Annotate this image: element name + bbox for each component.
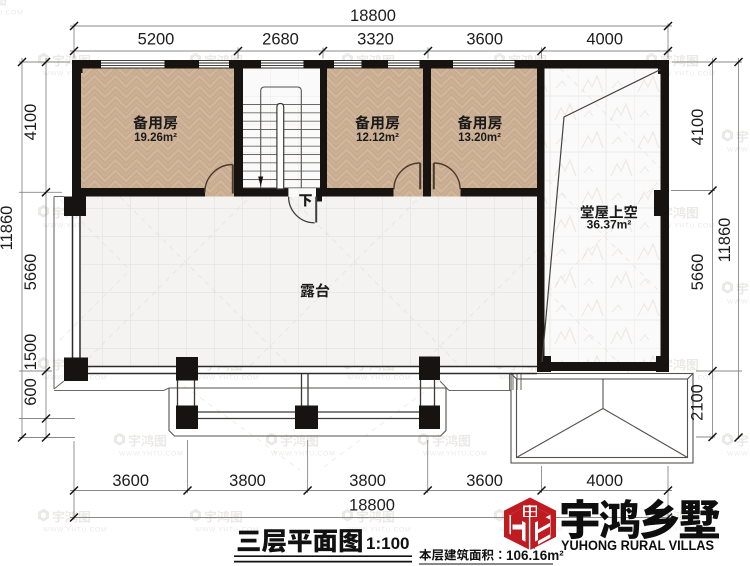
svg-text:WWW.YHTU.COM: WWW.YHTU.COM bbox=[0, 10, 23, 17]
svg-text:2100: 2100 bbox=[689, 384, 707, 421]
svg-text:11860: 11860 bbox=[716, 218, 734, 263]
svg-text:1500: 1500 bbox=[22, 334, 40, 371]
svg-text:12.12m²: 12.12m² bbox=[356, 132, 399, 144]
svg-text:3320: 3320 bbox=[357, 31, 394, 49]
svg-text:36.37m²: 36.37m² bbox=[587, 218, 632, 232]
svg-text:106.16m²: 106.16m² bbox=[506, 548, 564, 563]
svg-text:5660: 5660 bbox=[689, 254, 707, 291]
svg-text:13.20m²: 13.20m² bbox=[458, 132, 501, 144]
svg-text:3600: 3600 bbox=[112, 472, 149, 490]
svg-text:3800: 3800 bbox=[229, 472, 266, 490]
svg-text:4100: 4100 bbox=[22, 104, 40, 141]
svg-text:18800: 18800 bbox=[350, 7, 396, 25]
svg-text:4000: 4000 bbox=[586, 31, 623, 49]
svg-text:3600: 3600 bbox=[466, 31, 503, 49]
svg-text:1:100: 1:100 bbox=[366, 534, 409, 553]
svg-text:3600: 3600 bbox=[466, 472, 503, 490]
svg-text:4000: 4000 bbox=[586, 472, 623, 490]
svg-text:2680: 2680 bbox=[262, 31, 299, 49]
svg-text:600: 600 bbox=[22, 378, 40, 406]
svg-text:YUHONG RURAL VILLAS: YUHONG RURAL VILLAS bbox=[561, 538, 714, 554]
svg-text:4100: 4100 bbox=[689, 109, 707, 146]
svg-text:19.26m²: 19.26m² bbox=[134, 132, 177, 144]
svg-text:18800: 18800 bbox=[349, 497, 395, 515]
svg-text:5200: 5200 bbox=[138, 31, 175, 49]
svg-text:11860: 11860 bbox=[0, 206, 16, 251]
svg-text:3800: 3800 bbox=[349, 472, 386, 490]
svg-text:5660: 5660 bbox=[22, 254, 40, 291]
